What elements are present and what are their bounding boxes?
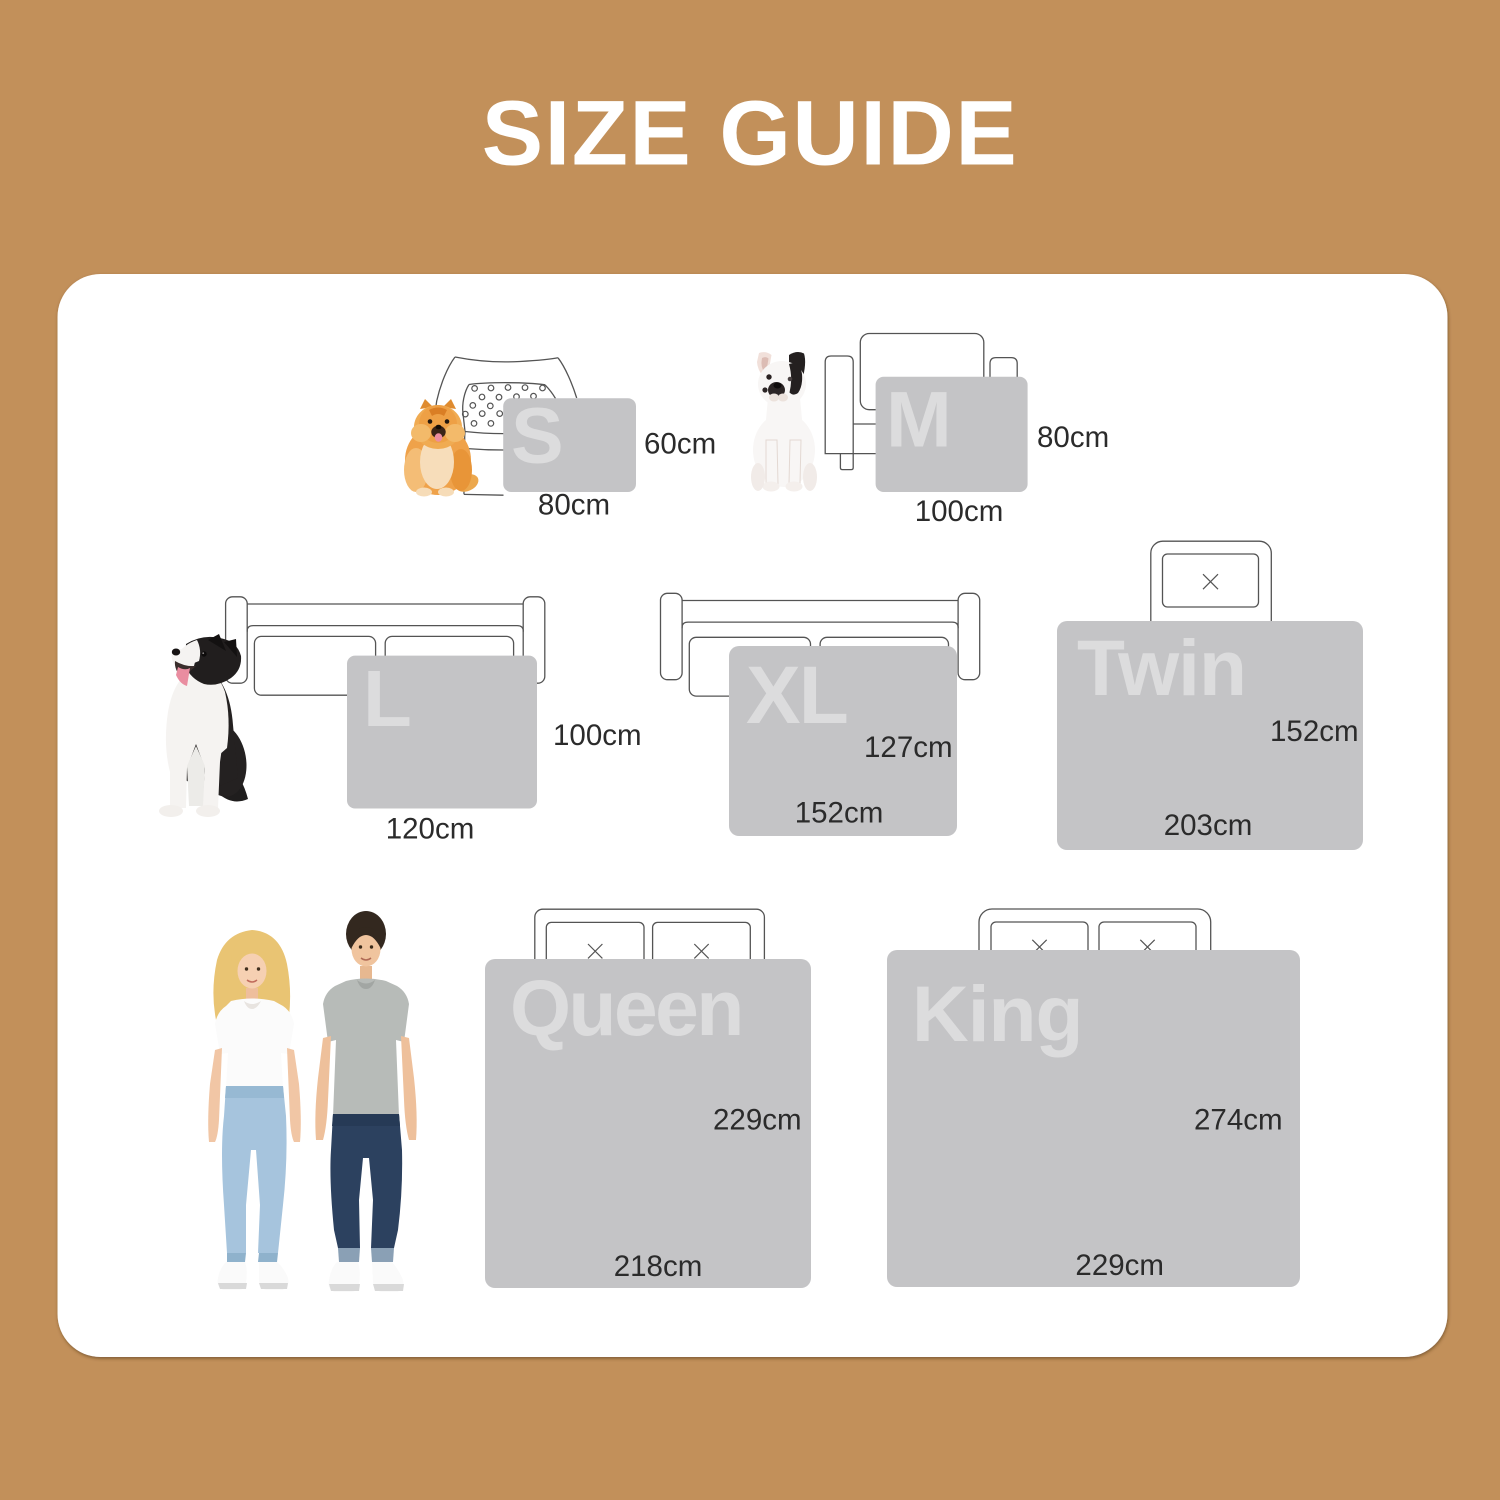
svg-text:120cm: 120cm — [386, 813, 475, 846]
svg-text:King: King — [912, 970, 1082, 1058]
svg-text:218cm: 218cm — [614, 1250, 703, 1283]
svg-text:Queen: Queen — [510, 964, 742, 1052]
svg-text:M: M — [886, 374, 952, 463]
svg-text:100cm: 100cm — [553, 719, 642, 752]
svg-text:60cm: 60cm — [644, 428, 716, 461]
svg-text:S: S — [511, 391, 564, 480]
svg-text:SIZE GUIDE: SIZE GUIDE — [482, 83, 1018, 185]
svg-text:80cm: 80cm — [1037, 421, 1109, 454]
svg-text:Twin: Twin — [1077, 624, 1246, 712]
svg-text:152cm: 152cm — [795, 797, 884, 830]
svg-text:100cm: 100cm — [915, 495, 1004, 528]
svg-text:XL: XL — [746, 650, 847, 741]
svg-text:229cm: 229cm — [713, 1104, 802, 1137]
svg-text:229cm: 229cm — [1075, 1249, 1164, 1282]
svg-text:L: L — [363, 654, 412, 743]
svg-text:203cm: 203cm — [1164, 809, 1253, 842]
svg-text:152cm: 152cm — [1270, 715, 1359, 748]
svg-text:127cm: 127cm — [864, 731, 953, 764]
svg-text:274cm: 274cm — [1194, 1104, 1283, 1137]
svg-text:80cm: 80cm — [538, 489, 610, 522]
